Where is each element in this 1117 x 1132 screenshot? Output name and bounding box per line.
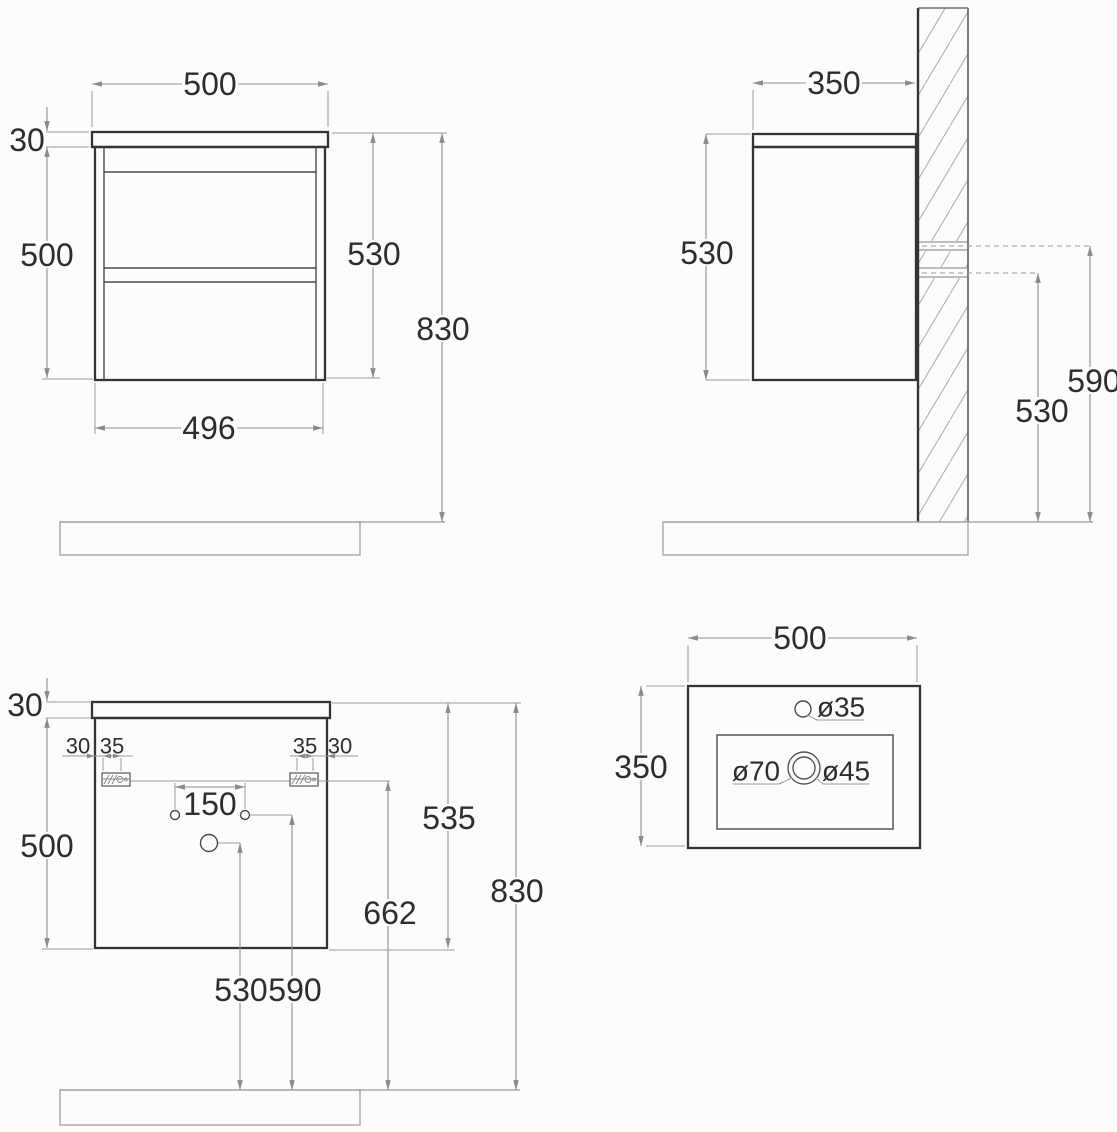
- back-rail-height-label: 662: [363, 895, 416, 931]
- back-body-height-label: 500: [20, 828, 73, 864]
- back-bracket-dimensions: 30 35 35 30: [62, 734, 358, 772]
- faucet-hole-callout: ø35: [807, 692, 865, 723]
- back-floor: [60, 1090, 520, 1125]
- right-mounting-bracket: [290, 773, 318, 786]
- side-cabinet-outline: [753, 134, 916, 380]
- front-bottom-width-label: 496: [182, 410, 235, 446]
- basin-outline: [688, 686, 920, 848]
- back-hole-spacing-label: 150: [183, 786, 236, 822]
- back-drain-height-label: 530: [214, 972, 267, 1008]
- drain-label: ø45: [822, 756, 870, 787]
- front-total-height-label: 830: [416, 311, 469, 347]
- drain-circle: [793, 757, 815, 779]
- front-view: 500 30 500 530 830 496: [9, 66, 471, 555]
- front-top-width-label: 500: [183, 66, 236, 102]
- back-supply-height-label: 590: [268, 972, 321, 1008]
- front-floor: [60, 522, 445, 555]
- back-floor-hatch: [60, 1090, 360, 1125]
- side-view: 350 530 590 530: [663, 8, 1117, 555]
- side-wall: [917, 8, 969, 522]
- basin-dimensions: 500 350: [613, 620, 917, 846]
- left-mounting-bracket: [102, 773, 130, 786]
- side-lower-mount-label: 530: [1015, 393, 1068, 429]
- basin-width-label: 500: [773, 620, 826, 656]
- side-depth-label: 350: [807, 65, 860, 101]
- front-floor-hatch: [60, 522, 360, 555]
- right-supply-hole: [241, 811, 250, 820]
- side-upper-mount-label: 590: [1067, 363, 1117, 399]
- technical-drawing-page: 500 30 500 530 830 496: [0, 0, 1117, 1132]
- wall-hatch: [918, 8, 968, 522]
- side-floor: [663, 522, 1093, 555]
- back-left-offset-label: 30: [66, 734, 90, 759]
- side-carcass: [753, 147, 916, 380]
- back-total-height-label: 830: [490, 873, 543, 909]
- back-countertop: [92, 702, 330, 718]
- basin-view: ø35 ø70 ø45 500 350: [613, 620, 920, 848]
- front-height-label: 530: [347, 236, 400, 272]
- front-cabinet-outline: [92, 132, 328, 380]
- faucet-hole-label: ø35: [817, 692, 865, 723]
- overflow-callout: ø70: [732, 756, 792, 787]
- drain-callout: ø45: [816, 756, 870, 787]
- back-left-bracket-label: 35: [100, 734, 124, 759]
- back-right-bracket-label: 35: [293, 734, 317, 759]
- back-inner-height-label: 535: [422, 800, 475, 836]
- vanity-cabinet-drawing: 500 30 500 530 830 496: [0, 0, 1117, 1132]
- faucet-hole: [795, 701, 811, 717]
- side-floor-hatch: [663, 522, 968, 555]
- back-top-thickness-label: 30: [7, 687, 43, 723]
- back-right-offset-label: 30: [328, 734, 352, 759]
- side-height-label: 530: [680, 235, 733, 271]
- overflow-label: ø70: [732, 756, 780, 787]
- front-body-height-label: 500: [20, 237, 73, 273]
- front-countertop: [92, 132, 328, 147]
- front-top-thickness-label: 30: [9, 122, 45, 158]
- basin-depth-label: 350: [614, 749, 667, 785]
- left-supply-hole: [171, 811, 180, 820]
- drain-hole: [201, 835, 218, 852]
- back-view: 30 35 35 30 150 530: [7, 678, 545, 1125]
- side-countertop: [753, 134, 916, 147]
- front-carcass: [95, 147, 325, 380]
